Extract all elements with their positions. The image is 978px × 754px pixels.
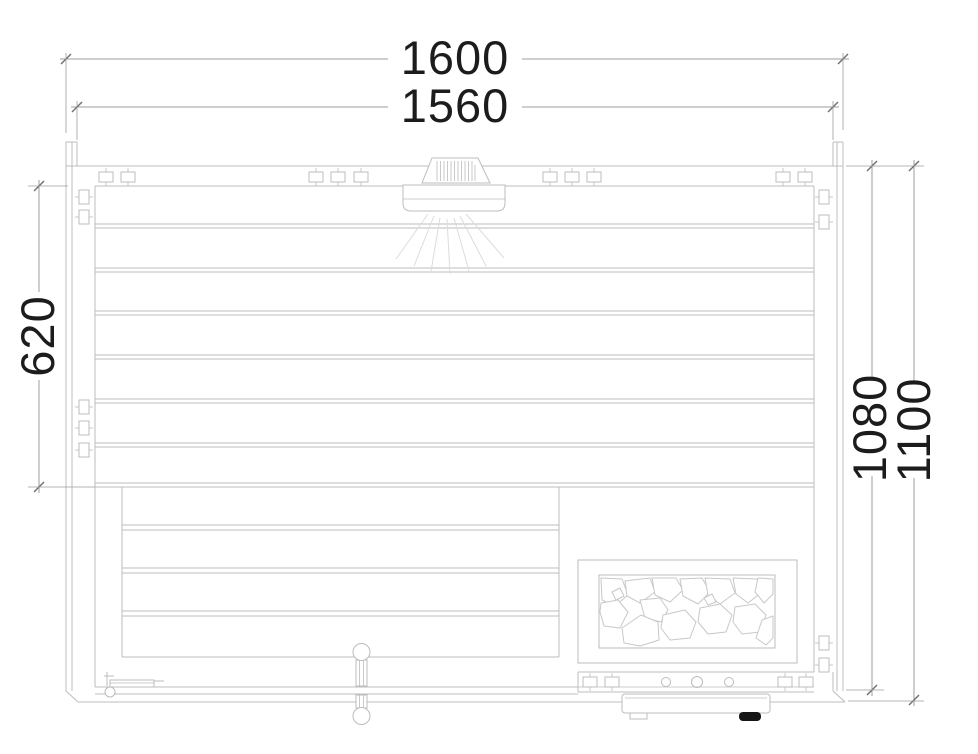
sauna-floor-plan: 1600 1560 620 1080 1100 xyxy=(0,0,978,754)
door-handle xyxy=(353,644,370,725)
dim-label-1560: 1560 xyxy=(401,79,510,132)
dimension-620: 620 xyxy=(11,180,95,493)
lower-bench xyxy=(122,487,559,657)
sauna-plan-drawing: 1600 1560 620 1080 1100 xyxy=(0,0,978,754)
control-box xyxy=(622,694,770,721)
dim-label-1100: 1100 xyxy=(887,377,940,482)
light-shade xyxy=(403,185,505,211)
ventilation-holes xyxy=(662,677,734,688)
dimension-1560: 1560 xyxy=(71,79,839,140)
power-knob xyxy=(739,712,761,721)
light-vent-grille xyxy=(422,158,490,183)
heater xyxy=(578,560,797,663)
light-rays xyxy=(396,214,504,274)
dim-label-1600: 1600 xyxy=(401,31,510,84)
door-hinge xyxy=(104,672,164,697)
dim-label-620: 620 xyxy=(11,295,64,376)
upper-bench xyxy=(95,224,814,487)
ceiling-light xyxy=(396,158,505,274)
heater-stones xyxy=(600,578,773,646)
